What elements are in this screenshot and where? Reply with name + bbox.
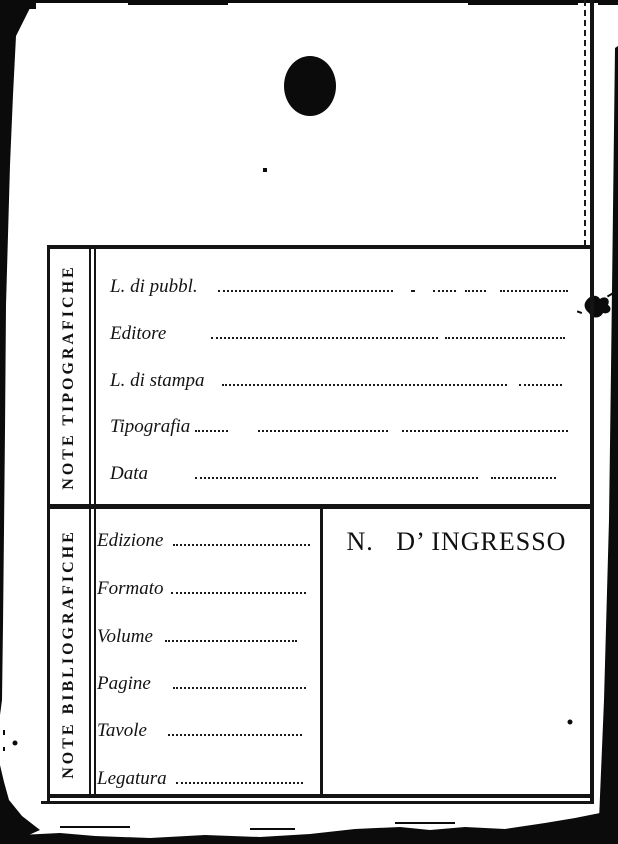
field-label: Edizione [97, 530, 164, 552]
field-row-edizione: Edizione [97, 530, 310, 552]
field-label: Editore [110, 323, 166, 345]
field-label: Volume [97, 626, 153, 648]
dotted-fill-line [218, 290, 393, 292]
torn-edge-right [598, 46, 618, 844]
dotted-fill-line [222, 384, 507, 386]
dotted-fill-line [168, 734, 302, 736]
hole-punch-mark [284, 56, 336, 116]
dotted-fill-line [491, 477, 556, 479]
field-row-luogo-pubblicazione: L. di pubbl. [110, 276, 568, 298]
torn-edge-left [0, 0, 40, 840]
rule-right-border [590, 0, 594, 801]
dotted-fill-line [445, 337, 565, 339]
field-row-volume: Volume [97, 626, 297, 648]
dotted-fill-line [402, 430, 568, 432]
dotted-fill-line [258, 430, 388, 432]
rule-table-bottom-outer [41, 801, 594, 804]
rule-label-col-2b [94, 509, 96, 798]
field-row-pagine: Pagine [97, 673, 306, 695]
dotted-fill-line [176, 782, 303, 784]
field-row-tipografia: Tipografia [110, 416, 568, 438]
section-label-bibliografiche: NOTE BIBLIOGRAFICHE [47, 509, 90, 798]
field-label: Tipografia [110, 416, 190, 438]
field-label: Pagine [97, 673, 151, 695]
ink-smudge [577, 293, 613, 318]
field-row-legatura: Legatura [97, 768, 303, 790]
section-label-tipografiche-text: NOTE TIPOGRAFICHE [60, 264, 78, 489]
dotted-fill-line [500, 290, 568, 292]
field-label: L. di stampa [110, 370, 205, 392]
dotted-fill-line [465, 290, 486, 292]
field-label: Data [110, 463, 148, 485]
section-label-tipografiche: NOTE TIPOGRAFICHE [47, 249, 90, 504]
accession-number-heading: N. D’ INGRESSO [323, 527, 590, 557]
field-row-formato: Formato [97, 578, 306, 600]
field-row-tavole: Tavole [97, 720, 302, 742]
dotted-fill-line [411, 290, 415, 292]
dotted-fill-line [165, 640, 297, 642]
dotted-fill-line [433, 290, 456, 292]
dotted-fill-line [195, 430, 228, 432]
rule-right-thin-line [584, 0, 586, 246]
scanned-library-card: NOTE TIPOGRAFICHE NOTE BIBLIOGRAFICHE L.… [0, 0, 618, 844]
torn-edge-top [0, 0, 618, 9]
field-label: L. di pubbl. [110, 276, 198, 298]
section-label-bibliografiche-text: NOTE BIBLIOGRAFICHE [60, 529, 78, 778]
field-label: Formato [97, 578, 164, 600]
rule-label-col-1b [94, 249, 96, 504]
dotted-fill-line [173, 544, 310, 546]
field-row-luogo-stampa: L. di stampa [110, 370, 562, 392]
dotted-fill-line [211, 337, 438, 339]
field-label: Legatura [97, 768, 167, 790]
dotted-fill-line [173, 687, 306, 689]
field-label: Tavole [97, 720, 147, 742]
dotted-fill-line [171, 592, 306, 594]
dotted-fill-line [195, 477, 478, 479]
torn-edge-bottom [0, 809, 618, 844]
dotted-fill-line [519, 384, 562, 386]
rule-table-top [47, 245, 594, 249]
field-row-editore: Editore [110, 323, 565, 345]
field-row-data: Data [110, 463, 556, 485]
